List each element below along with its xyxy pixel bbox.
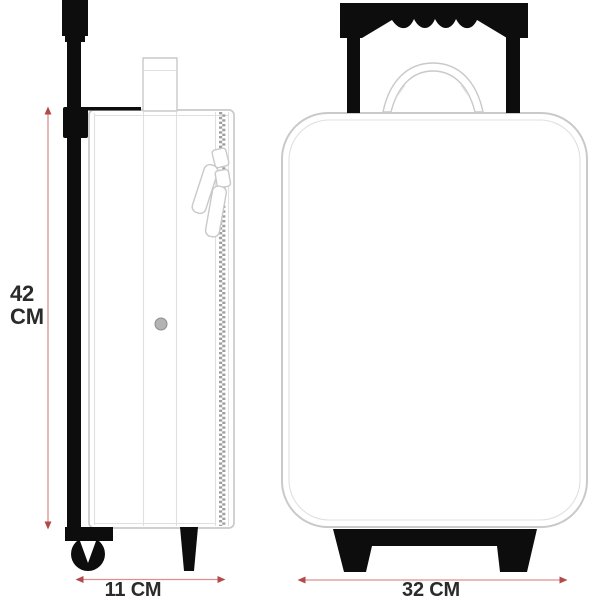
- height-unit: CM: [10, 305, 44, 328]
- front-wheel-base: [333, 529, 537, 572]
- side-stud: [155, 318, 167, 330]
- diagram-drawing: [0, 0, 600, 600]
- height-arrow-bottom: [45, 522, 52, 530]
- depth-label: 11 CM: [88, 579, 178, 600]
- carry-handle: [383, 63, 483, 112]
- front-body-outline: [282, 113, 587, 527]
- zipper-slider-bottom: [215, 169, 231, 188]
- height-label: 42 CM: [10, 282, 44, 328]
- height-value: 42: [10, 282, 44, 305]
- trolley-pole-cap: [62, 0, 88, 42]
- telescopic-tube: [143, 58, 177, 111]
- width-arrow-left: [298, 577, 306, 584]
- depth-arrow-left: [76, 576, 84, 583]
- trolley-leg-left: [347, 36, 360, 113]
- side-foot: [180, 527, 198, 571]
- front-view: [282, 3, 587, 572]
- trolley-handle-grip: [340, 3, 528, 38]
- side-view: [62, 0, 234, 571]
- height-arrow-top: [45, 107, 52, 115]
- suitcase-dimension-diagram: 42 CM 11 CM 32 CM: [0, 0, 600, 600]
- trolley-leg-right: [506, 36, 520, 113]
- side-top-black-trim: [81, 107, 141, 111]
- width-label: 32 CM: [383, 579, 479, 600]
- trolley-pole-clamp: [63, 107, 88, 138]
- depth-arrow-right: [218, 576, 226, 583]
- width-arrow-right: [560, 577, 568, 584]
